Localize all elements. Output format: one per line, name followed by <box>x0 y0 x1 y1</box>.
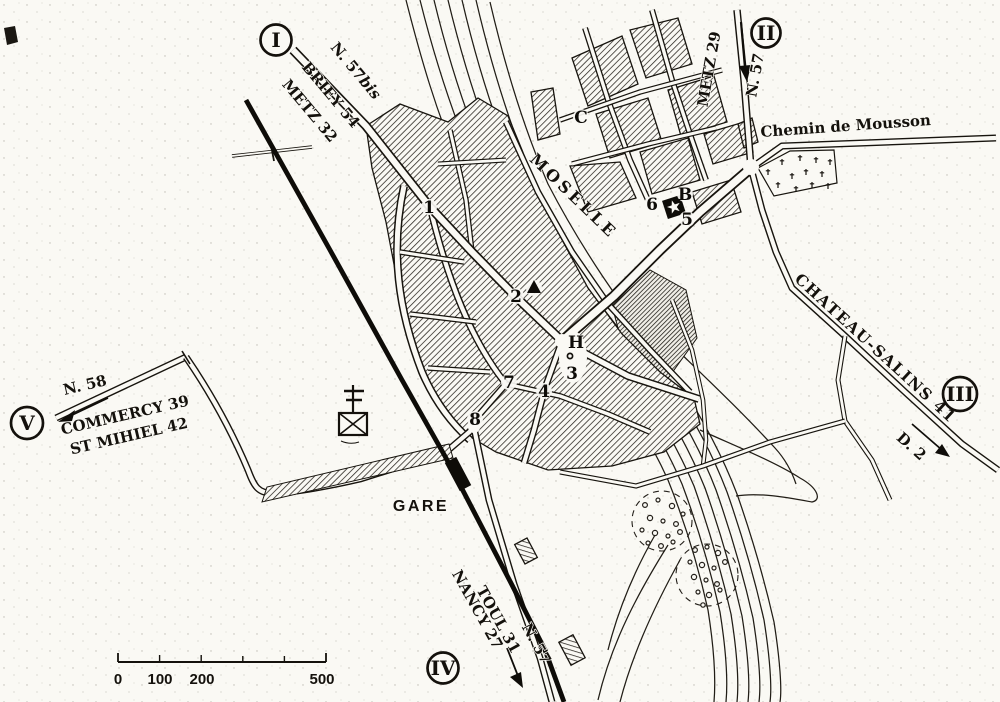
svg-text:V: V <box>18 411 35 435</box>
svg-text:II: II <box>757 21 776 45</box>
scale-label-200: 200 <box>189 671 214 688</box>
junction-badge-v: V <box>11 407 43 439</box>
marker-1: 1 <box>423 198 435 218</box>
marker-8: 8 <box>469 410 481 430</box>
marker-b: B <box>678 185 692 205</box>
junction-badge-iii: III <box>943 377 977 411</box>
marker-h: H <box>568 333 584 353</box>
town-plan-svg: N. 57bis BRIEY 54 METZ 32 METZ 29 N. 57 … <box>0 0 1000 702</box>
map-canvas: N. 57bis BRIEY 54 METZ 32 METZ 29 N. 57 … <box>0 0 1000 702</box>
marker-2: 2 <box>510 287 522 307</box>
marker-7: 7 <box>503 373 515 393</box>
junction-badge-ii: II <box>752 19 781 48</box>
marker-c: C <box>574 108 588 128</box>
marker-6: 6 <box>646 195 658 215</box>
scale-label-0: 0 <box>114 671 122 688</box>
svg-text:I: I <box>271 28 280 52</box>
marker-5: 5 <box>681 210 693 230</box>
marker-4: 4 <box>538 382 550 402</box>
town-hall-dot-icon <box>567 353 572 358</box>
scale-label-100: 100 <box>147 671 172 688</box>
station-label: GARE <box>393 498 449 515</box>
svg-text:IV: IV <box>431 656 456 680</box>
scale-label-500: 500 <box>309 671 334 688</box>
marker-3: 3 <box>566 364 578 384</box>
junction-badge-iv: IV <box>428 653 459 684</box>
svg-text:III: III <box>946 382 974 406</box>
junction-badge-i: I <box>261 25 292 56</box>
